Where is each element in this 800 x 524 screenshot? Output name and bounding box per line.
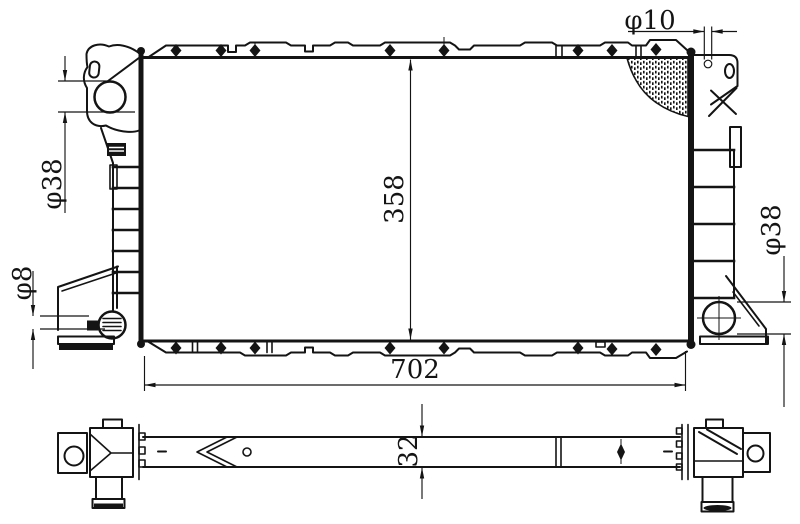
- dim-label-top-hole: φ10: [624, 6, 675, 36]
- plan-left-bracket: [58, 420, 145, 509]
- dim-thickness: 32: [394, 404, 424, 499]
- radiator-core: [137, 47, 696, 349]
- drawing-canvas: 358 702 φ10 φ38 φ8: [0, 0, 800, 524]
- fin-section-hatch: [627, 58, 688, 117]
- dim-label-outlet-right: φ38: [757, 204, 787, 255]
- plan-view: 32: [58, 404, 770, 512]
- plan-right-hole: [748, 446, 764, 462]
- dim-outlet-right: φ38: [737, 204, 791, 407]
- plan-left-hole: [65, 447, 84, 466]
- plan-right-bracket: [677, 420, 771, 512]
- dim-label-overall-width: 702: [390, 355, 440, 385]
- right-tank-ribs: [694, 150, 734, 298]
- filler-hole: [704, 60, 712, 68]
- dim-core-height: 358: [380, 60, 413, 340]
- mounting-bracket-top-left: [84, 45, 140, 132]
- dim-label-thickness: 32: [394, 434, 424, 467]
- plan-left-pipe: [96, 477, 122, 499]
- dim-overall-width: 702: [145, 351, 686, 391]
- dim-label-inlet-left: φ38: [38, 158, 68, 209]
- left-clip: [107, 143, 126, 156]
- left-tank: [101, 128, 139, 310]
- drain-plug: [99, 312, 126, 339]
- bracket-slot-hole-right: [725, 64, 734, 78]
- right-tank: [694, 150, 734, 298]
- plan-right-pipe: [703, 477, 733, 502]
- dim-label-drain: φ8: [8, 266, 38, 301]
- dim-inlet-left: φ38: [38, 56, 135, 213]
- front-view: [58, 37, 768, 358]
- radiator-technical-drawing: 358 702 φ10 φ38 φ8: [0, 0, 800, 524]
- bottom-left-bracket: [58, 267, 126, 351]
- dim-label-core-height: 358: [380, 174, 410, 224]
- bracket-slot-hole: [89, 61, 100, 78]
- top-header-rail: [148, 37, 687, 58]
- inlet-port: [95, 82, 126, 113]
